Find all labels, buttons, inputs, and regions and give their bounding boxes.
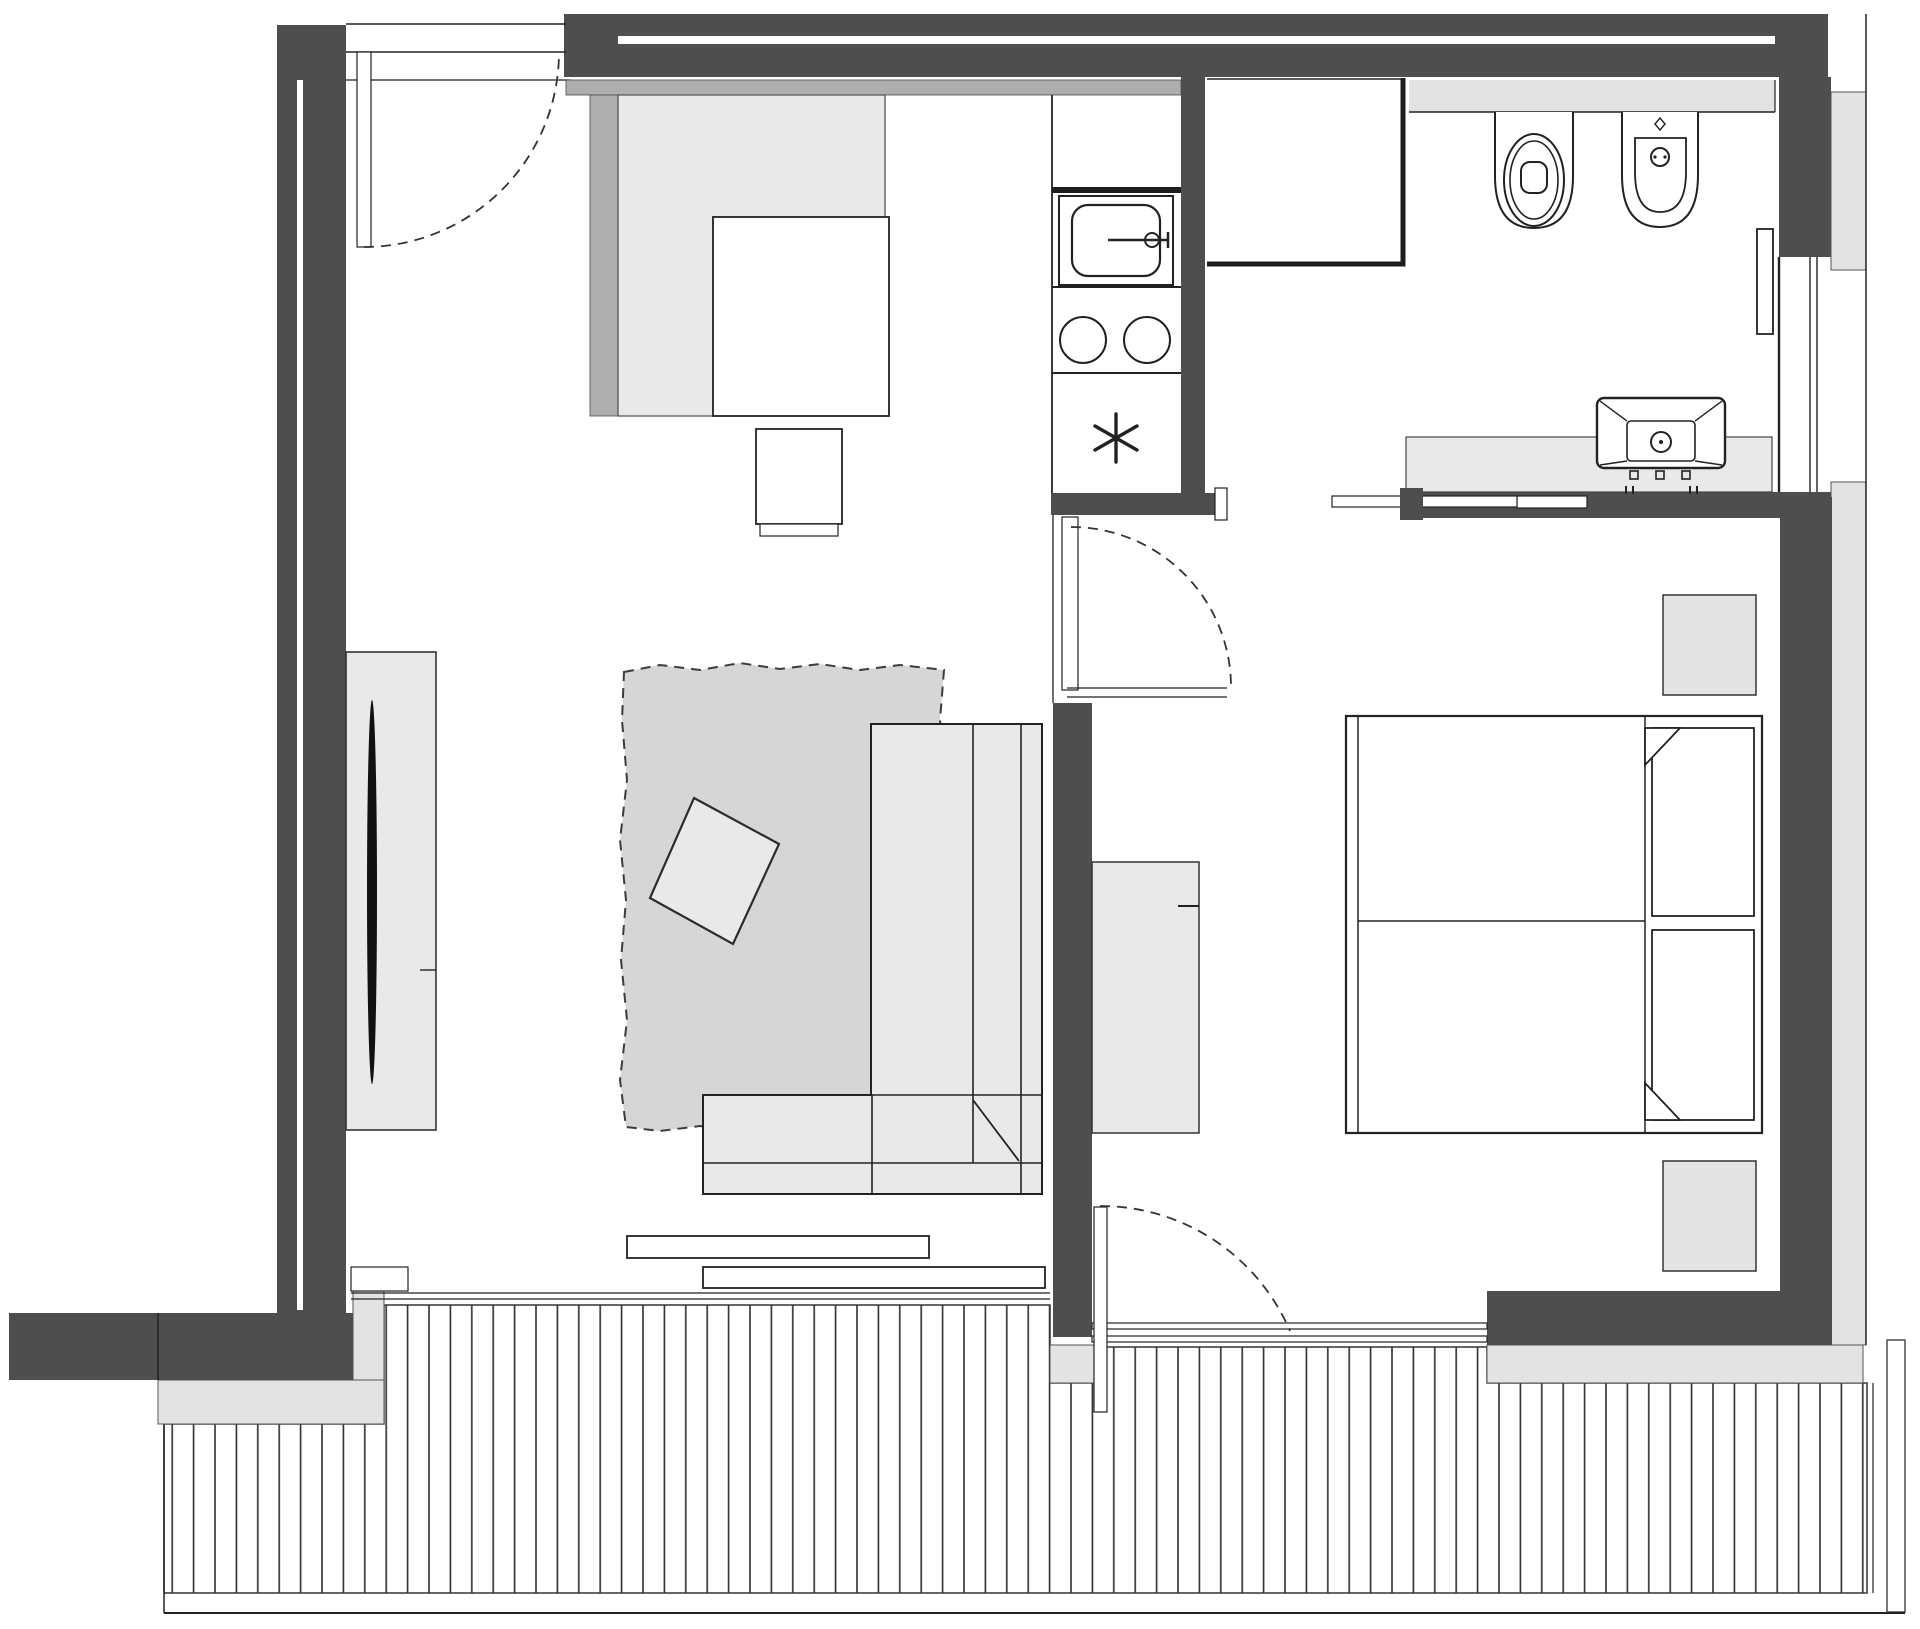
chair [756,429,842,524]
dining-table [713,217,889,416]
shower-enclosure [1207,78,1403,264]
tv-cabinet [346,652,436,1130]
top-wall-inner-line [618,36,1775,44]
bathroom [1207,78,1817,520]
pocket-door-recess [1517,496,1587,508]
bedroom-south-wall [1487,1291,1831,1345]
entry-door [346,24,571,247]
kitchen-bath-divider-wall [1181,74,1205,515]
nightstand-bottom [1663,1161,1756,1271]
right-wall-upper [1779,77,1831,257]
entry-door-leaf [357,52,371,247]
counter-divider-thick [1052,187,1181,193]
entry-door-swing-arc [364,52,559,247]
floor-plan [0,0,1920,1629]
terrace-right-post [1887,1340,1905,1612]
terrace-door-threshold-1 [1092,1323,1487,1329]
band-corner-horizontal [158,1380,384,1424]
terrace-door-threshold-2 [1092,1336,1487,1342]
wardrobe [1092,862,1199,1133]
tv [367,700,377,1084]
bedroom [1346,595,1762,1271]
floor-plan-drawing [0,0,1920,1629]
left-wall-inner-line [297,80,303,1310]
right-wall-lower [1780,497,1832,1345]
sill-jamb [351,1267,408,1291]
hall-door-leaf [1062,517,1078,690]
top-wall [564,14,1828,77]
band-right-upper [1831,92,1866,270]
band-bedroom-south [1487,1345,1863,1383]
bathroom-window [1779,257,1817,492]
radiator [1757,229,1773,334]
nightstand-top [1663,595,1756,695]
pillow-left [1652,728,1754,916]
living-room [346,652,1050,1299]
hall-door-jamb [1215,488,1227,520]
sliding-sill-lower [703,1267,1045,1288]
bottom-left-wall [9,1313,353,1380]
hob-burner-right [1124,317,1170,363]
pillow-right [1652,930,1754,1120]
toilet-body [1495,112,1573,228]
hall-divider-wall [1053,703,1092,1337]
band-right-lower [1831,482,1866,1345]
terrace-door-leaf [1094,1207,1107,1412]
sliding-sill-upper [627,1236,929,1258]
freezer-star-icon [1095,414,1137,462]
toilet [1495,112,1573,228]
vanity [1406,398,1772,494]
left-wall [277,25,346,1313]
bidet-faucet-dot-1 [1653,155,1656,158]
kitchen [566,80,1181,536]
pocket-door-leaf [1332,496,1517,507]
hall-door-swing-arc [1071,527,1231,687]
hall-door [1062,488,1231,697]
sliding-glass-door [351,1236,1050,1299]
kitchen-wall-strip-horizontal [566,80,1181,95]
bidet [1622,112,1698,227]
hob-burner-left [1060,317,1106,363]
bathroom-wall-shelf [1409,80,1775,112]
basin-drain-dot [1659,440,1663,444]
double-bed [1346,716,1762,1133]
kitchen-wall-strip-vertical [590,95,618,416]
chair-back [760,524,838,536]
bidet-faucet-dot-2 [1663,155,1666,158]
pocket-door-jamb [1400,488,1423,520]
kitchen-south-wall [1051,493,1215,515]
terrace-door-swing-arc [1100,1206,1290,1331]
